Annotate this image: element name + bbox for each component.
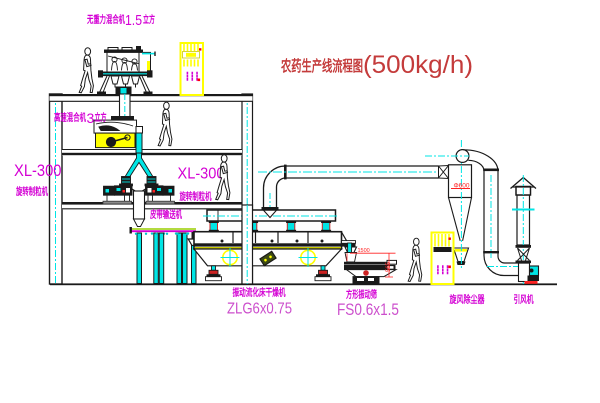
svg-text:XL-300: XL-300 [178, 166, 225, 183]
svg-text:XL-300: XL-300 [14, 162, 62, 180]
svg-text:ZLG6x0.75: ZLG6x0.75 [227, 301, 292, 318]
svg-text:高速混合机: 高速混合机 [54, 111, 86, 124]
svg-text:无重力混合机: 无重力混合机 [86, 13, 125, 26]
svg-text:1.5: 1.5 [125, 12, 142, 29]
svg-text:┇┇┇: ┇┇┇ [436, 265, 450, 275]
svg-text:旋转制粒机: 旋转制粒机 [15, 185, 48, 198]
svg-text:振动流化床干燥机: 振动流化床干燥机 [233, 286, 286, 299]
svg-text:3: 3 [87, 110, 95, 126]
svg-text:1500: 1500 [358, 248, 370, 254]
svg-text:引风机: 引风机 [514, 293, 534, 306]
svg-text:旋转制粒机: 旋转制粒机 [179, 190, 212, 203]
svg-text:农药生产线流程图: 农药生产线流程图 [280, 57, 363, 75]
svg-text:FS0.6x1.5: FS0.6x1.5 [337, 300, 399, 319]
svg-text:565: 565 [386, 261, 392, 272]
svg-text:┇┇┇: ┇┇┇ [185, 71, 199, 81]
svg-text:皮带输送机: 皮带输送机 [149, 208, 182, 221]
svg-text:旋风除尘器: 旋风除尘器 [449, 293, 485, 306]
svg-text:立方: 立方 [95, 111, 107, 124]
svg-text:(500kg/h): (500kg/h) [363, 51, 473, 79]
svg-text:立方: 立方 [143, 13, 155, 26]
